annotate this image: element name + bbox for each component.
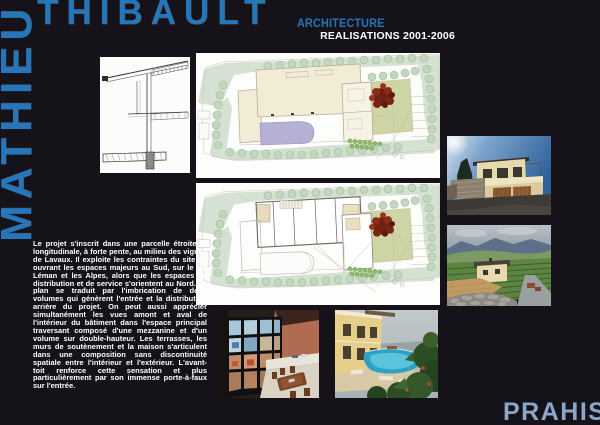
photo-house-exterior [447, 136, 551, 215]
site-plan-upper-level [196, 53, 440, 178]
project-name-label: PRAHIS [503, 400, 600, 425]
profession-subtitle: ARCHITECTURE [297, 18, 385, 30]
first-name-vertical: MATHIEU [0, 3, 37, 242]
series-label: REALISATIONS 2001-2006 [320, 30, 455, 42]
project-description: Le projet s'inscrit dans une parcelle ét… [33, 240, 207, 390]
photo-vineyard-landscape [447, 225, 551, 306]
plan-pool-outline [260, 252, 314, 275]
last-name-title: THIBAULT [37, 0, 273, 33]
site-plan-lower-level [196, 183, 440, 305]
photo-pool-terrace [335, 310, 438, 398]
plan-pool [260, 122, 314, 146]
construction-detail-drawing [100, 57, 190, 173]
photo-interior-mezzanine [220, 310, 319, 398]
portfolio-page: MATHIEU THIBAULT ARCHITECTURE REALISATIO… [0, 0, 600, 425]
